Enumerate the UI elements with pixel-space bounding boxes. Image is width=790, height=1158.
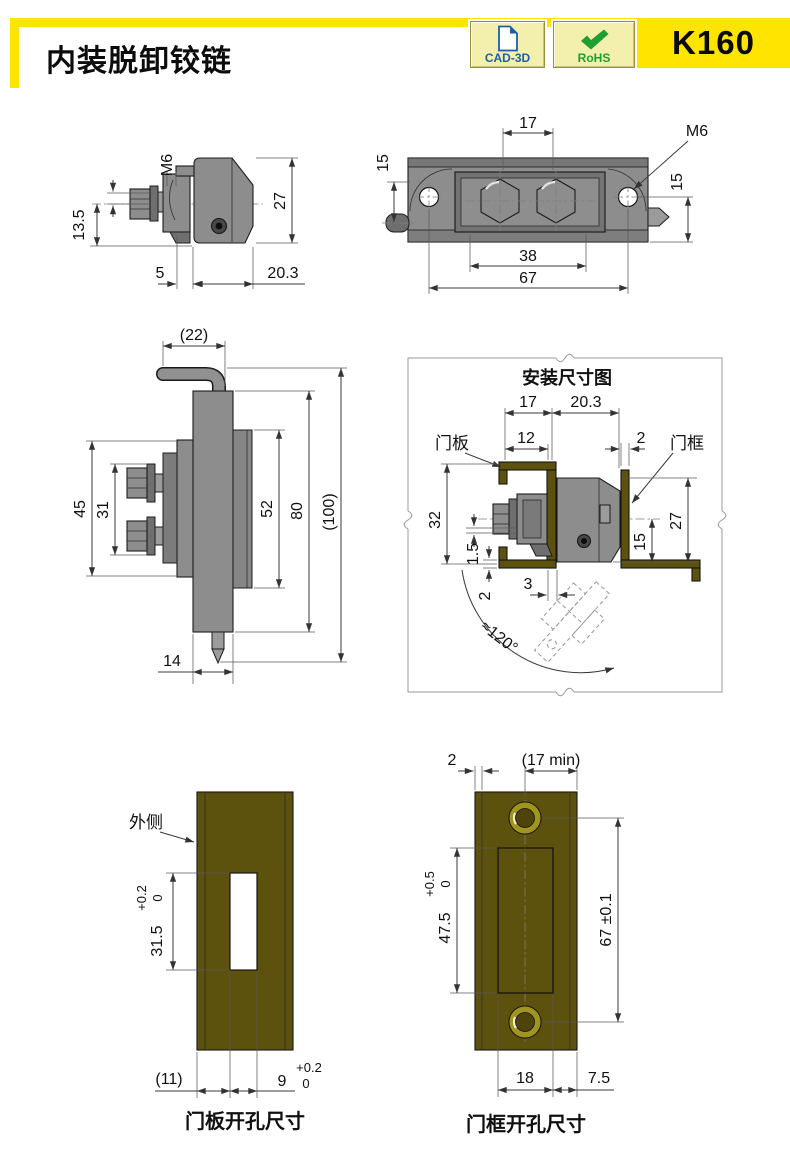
- dim-label: (100): [321, 493, 338, 530]
- drawing-canvas: M6 13.5 27 5 20.3: [0, 100, 790, 1158]
- view-panel-cutout: 外侧 31.5 +0.2 0 (11) 9 +0.2: [129, 792, 322, 1133]
- dim-label: (22): [180, 327, 208, 344]
- door-panel-sheet: [499, 462, 556, 470]
- dim-label: 17: [519, 394, 537, 411]
- installation-geometry: [478, 462, 700, 581]
- dim-label: 31: [95, 501, 112, 519]
- frame-geometry: [475, 792, 577, 1050]
- badge-label: CAD-3D: [485, 52, 530, 65]
- dim-label: 2: [448, 752, 457, 769]
- view-frame-cutout: 2 (17 min) 47.5 +0.5 0 67 ±0.1: [422, 752, 624, 1136]
- dim-label: 38: [519, 248, 537, 265]
- tolerance-lower: 0: [438, 880, 453, 887]
- hex-nut: [127, 521, 147, 551]
- hex-nut: [127, 468, 147, 498]
- dim-label: 20.3: [570, 394, 601, 411]
- dim-label: 7.5: [588, 1070, 610, 1087]
- dim-label: 45: [72, 500, 89, 518]
- door-frame-sheet: [621, 470, 629, 562]
- dim-label: 52: [259, 500, 276, 518]
- dim-label: 27: [668, 512, 685, 530]
- pivot-pin-right: [648, 208, 669, 226]
- release-rod: [163, 374, 219, 393]
- tolerance-upper: +0.2: [134, 885, 149, 911]
- dim-label: 15: [632, 533, 649, 551]
- dim-label: 2: [477, 591, 494, 600]
- hinge-side-geometry: [92, 158, 263, 243]
- dim-label: 27: [272, 192, 289, 210]
- dim-label: 5: [156, 265, 165, 282]
- tolerance-lower: 0: [150, 894, 165, 901]
- hinge-open-ghost: [523, 571, 619, 671]
- dim-label: 3: [524, 576, 533, 593]
- hinge-front-geometry: [382, 158, 669, 242]
- hinge-sideview-geometry: [127, 374, 252, 663]
- panel-cutout-caption: 门板开孔尺寸: [185, 1109, 305, 1133]
- tolerance-upper: +0.5: [422, 871, 437, 897]
- dim-label: 31.5: [149, 925, 166, 956]
- page-title: 内装脱卸铰链: [46, 36, 232, 80]
- dim-label: 9: [278, 1073, 287, 1090]
- view-side-detail: M6 13.5 27 5 20.3: [71, 154, 305, 289]
- dim-label: 17: [519, 115, 537, 132]
- hex-nut: [493, 504, 509, 534]
- dim-label: ≈120°: [477, 618, 520, 657]
- panel-slot-cutout: [230, 873, 257, 970]
- dim-label: 67 ±0.1: [598, 893, 615, 946]
- dim-label: M6: [686, 123, 708, 140]
- dim-label: 67: [519, 270, 537, 287]
- cert-badge-cad3d[interactable]: CAD-3D: [470, 21, 545, 68]
- dim-label: (11): [155, 1071, 182, 1088]
- view-front: 17 M6 15 15 38 67: [375, 115, 708, 294]
- dim-label: 32: [427, 511, 444, 529]
- view-side-full: (22) 45 31 52 80 (100): [72, 327, 347, 684]
- dim-label: 18: [516, 1070, 534, 1087]
- document-icon: [496, 25, 520, 52]
- tolerance-lower: 0: [302, 1076, 309, 1091]
- outside-label: 外侧: [129, 813, 163, 832]
- pivot-pin-bottom: [212, 632, 224, 649]
- catalog-page: 内装脱卸铰链 CAD-3D RoHS K160: [0, 0, 790, 1158]
- hinge-body: [557, 478, 620, 562]
- installation-title: 安装尺寸图: [522, 367, 612, 388]
- dim-label: 15: [375, 154, 392, 172]
- dim-label: 1.5: [465, 543, 482, 565]
- badge-label: RoHS: [578, 52, 611, 65]
- dim-label: 14: [163, 653, 181, 670]
- dim-label: 80: [289, 502, 306, 520]
- panel-geometry: [197, 792, 293, 1050]
- checkmark-icon: [578, 28, 610, 52]
- part-number-box: K160: [637, 18, 790, 68]
- cert-badge-rohs[interactable]: RoHS: [553, 21, 635, 68]
- view-installation: 安装尺寸图: [402, 352, 728, 698]
- dim-label: 47.5: [437, 912, 454, 943]
- tolerance-upper: +0.2: [296, 1060, 322, 1075]
- door-panel-label: 门板: [435, 434, 469, 453]
- part-number: K160: [672, 24, 755, 62]
- dim-label: 2: [637, 430, 646, 447]
- accent-bar-left: [10, 18, 19, 88]
- dim-label: 20.3: [267, 265, 298, 282]
- dim-label: (17 min): [522, 752, 581, 769]
- dim-label: 12: [517, 430, 535, 447]
- door-frame-label: 门框: [670, 434, 704, 453]
- dim-label: 13.5: [71, 209, 88, 240]
- dim-label: 15: [669, 173, 686, 191]
- frame-cutout-caption: 门框开孔尺寸: [466, 1112, 586, 1136]
- dim-label: M6: [159, 154, 176, 176]
- hinge-leaf: [193, 391, 233, 632]
